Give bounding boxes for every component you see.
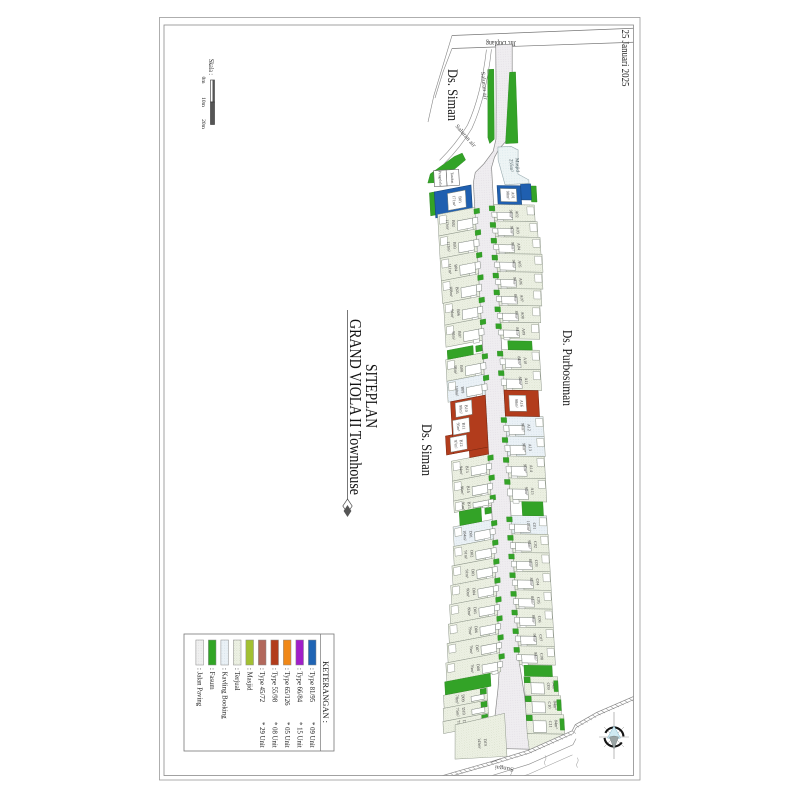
svg-text:A14: A14 [529, 465, 534, 472]
svg-text:D06: D06 [474, 625, 479, 633]
svg-text:96m²: 96m² [523, 464, 529, 473]
svg-text:B04: B04 [453, 264, 458, 272]
svg-text:A13: A13 [528, 444, 533, 451]
svg-text:C01: C01 [532, 523, 537, 530]
svg-text:A08: A08 [520, 312, 525, 319]
svg-text:B02: B02 [451, 220, 456, 228]
svg-text:95m²: 95m² [456, 422, 461, 432]
svg-text:C10: C10 [547, 701, 552, 708]
svg-text:111m²: 111m² [447, 263, 453, 275]
svg-text:0m: 0m [200, 76, 206, 84]
svg-text:* 05 Unit: * 05 Unit [283, 722, 290, 748]
svg-text:: Type 55/98: : Type 55/98 [270, 668, 277, 703]
svg-text:98m²: 98m² [508, 210, 514, 219]
svg-text:C11: C11 [548, 721, 553, 728]
svg-text:A10: A10 [523, 357, 528, 364]
svg-text:Masjid: Masjid [514, 158, 520, 173]
svg-text:B09: B09 [460, 386, 465, 394]
svg-text:B01: B01 [458, 196, 463, 204]
svg-text:: Fasum: : Fasum [208, 668, 215, 690]
svg-text:84m²: 84m² [529, 578, 535, 587]
svg-text:84m²: 84m² [515, 327, 521, 336]
svg-text:GRAND VIOLA II Townhouse: GRAND VIOLA II Townhouse [346, 319, 365, 495]
svg-text:A03: A03 [515, 227, 520, 234]
svg-text:* 15 Unit: * 15 Unit [295, 722, 302, 748]
svg-text:B14: B14 [466, 485, 471, 493]
svg-text:94m²: 94m² [533, 652, 539, 661]
svg-text:C02: C02 [533, 541, 538, 548]
svg-text:B11: B11 [461, 422, 466, 430]
svg-text:116m²: 116m² [526, 521, 532, 532]
svg-text:B06: B06 [456, 309, 461, 317]
svg-text:D02: D02 [469, 550, 474, 558]
svg-text:84m²: 84m² [514, 311, 520, 320]
svg-text:94m²: 94m² [524, 487, 530, 496]
svg-text:: Kavling Booking: : Kavling Booking [220, 668, 227, 719]
svg-text:143m²: 143m² [477, 738, 483, 750]
svg-text:98m²: 98m² [505, 191, 511, 200]
svg-text:A04: A04 [516, 243, 521, 250]
svg-text:98m²: 98m² [520, 423, 526, 432]
svg-text:B03: B03 [452, 241, 457, 249]
svg-text:Pengelola: Pengelola [438, 171, 443, 186]
svg-text:25 Januari 2025: 25 Januari 2025 [619, 30, 630, 87]
svg-text:84m²: 84m² [517, 356, 523, 365]
svg-text:: Type 81/95: : Type 81/95 [308, 668, 315, 703]
svg-text:C07: C07 [538, 634, 543, 641]
svg-text:D09: D09 [460, 694, 465, 702]
svg-text:Ds. Purbosuman: Ds. Purbosuman [559, 330, 574, 406]
svg-text:84m²: 84m² [518, 377, 524, 386]
svg-text:D04: D04 [472, 588, 477, 596]
svg-text:98m²: 98m² [510, 242, 516, 251]
svg-text:104m²: 104m² [462, 530, 468, 542]
svg-text:Saluran air: Saluran air [454, 124, 477, 149]
svg-text:C09: C09 [546, 682, 551, 689]
svg-text:94m²: 94m² [511, 260, 517, 269]
svg-text:108m²: 108m² [449, 286, 455, 298]
svg-text:B05: B05 [455, 286, 460, 294]
svg-text:112m²: 112m² [446, 241, 452, 253]
svg-text:* 29 Unit: * 29 Unit [258, 722, 265, 748]
svg-text:: Type 65/126: : Type 65/126 [283, 668, 290, 706]
svg-text:96m²: 96m² [509, 226, 515, 235]
svg-text:B13: B13 [465, 465, 470, 473]
svg-text:: Type 45/72: : Type 45/72 [258, 668, 265, 703]
svg-text:B15: B15 [467, 501, 472, 509]
svg-text:D07: D07 [475, 644, 480, 652]
svg-text:C03: C03 [534, 560, 539, 567]
svg-text:A12: A12 [526, 424, 531, 431]
svg-text:113m²: 113m² [445, 219, 451, 231]
svg-text:84m²: 84m² [553, 720, 559, 730]
svg-text:A02: A02 [514, 210, 519, 217]
svg-text:100m²: 100m² [454, 385, 460, 397]
svg-text:94m²: 94m² [532, 633, 538, 642]
svg-text:C04: C04 [535, 578, 540, 585]
svg-text:* 09 Unit: * 09 Unit [308, 722, 315, 748]
svg-text:Tandon: Tandon [450, 172, 455, 184]
svg-text:* 08 Unit: * 08 Unit [270, 722, 277, 748]
svg-text:C08: C08 [539, 653, 544, 660]
svg-text:84m²: 84m² [513, 294, 519, 303]
svg-text:B08: B08 [459, 365, 464, 373]
svg-text:Skala :: Skala : [207, 59, 215, 75]
svg-text:A05: A05 [517, 260, 522, 267]
svg-text:Ds. Siman: Ds. Siman [418, 424, 434, 476]
svg-text:84m²: 84m² [528, 559, 534, 568]
svg-text:: Type 66/84: : Type 66/84 [295, 668, 302, 703]
svg-text:A09: A09 [521, 328, 526, 335]
svg-text:75m²: 75m² [455, 707, 460, 718]
svg-text:B10: B10 [464, 404, 469, 412]
svg-text:KETERANGAN :: KETERANGAN : [321, 661, 330, 723]
svg-text:D03: D03 [470, 569, 475, 577]
svg-text:78m²: 78m² [454, 694, 459, 705]
svg-text:84m²: 84m² [530, 596, 536, 605]
svg-text:A06: A06 [518, 278, 523, 285]
svg-text:255m²: 255m² [508, 159, 515, 173]
svg-text:C05: C05 [536, 597, 541, 604]
svg-text:D19: D19 [483, 738, 488, 746]
svg-text:98m²: 98m² [521, 443, 527, 452]
svg-text:A15: A15 [530, 488, 535, 495]
svg-text:: Masjid: : Masjid [245, 668, 252, 691]
svg-text:: Jalan Paving: : Jalan Paving [195, 668, 202, 707]
svg-text:D10: D10 [461, 707, 466, 715]
svg-text:B07: B07 [457, 331, 462, 339]
svg-text:94m²: 94m² [512, 277, 518, 286]
svg-text:B12: B12 [459, 439, 464, 447]
svg-text:D05: D05 [473, 607, 478, 615]
svg-text:D01: D01 [468, 530, 473, 538]
svg-text:171m²: 171m² [452, 195, 458, 207]
svg-text:97m²: 97m² [453, 439, 458, 449]
svg-text:D08: D08 [476, 663, 481, 671]
svg-text:98m²: 98m² [514, 399, 520, 408]
svg-text:20m: 20m [200, 119, 206, 130]
svg-text:Ds. Siman: Ds. Siman [444, 69, 460, 121]
svg-text:94m²: 94m² [527, 540, 533, 549]
svg-text:A07: A07 [519, 295, 524, 302]
svg-text:C06: C06 [537, 616, 542, 623]
svg-text:84m²: 84m² [531, 615, 537, 624]
svg-text:A11: A11 [524, 377, 529, 384]
svg-text:98m²: 98m² [458, 405, 463, 415]
svg-text:10m: 10m [200, 97, 206, 108]
svg-text:: Terjual: : Terjual [233, 668, 240, 691]
